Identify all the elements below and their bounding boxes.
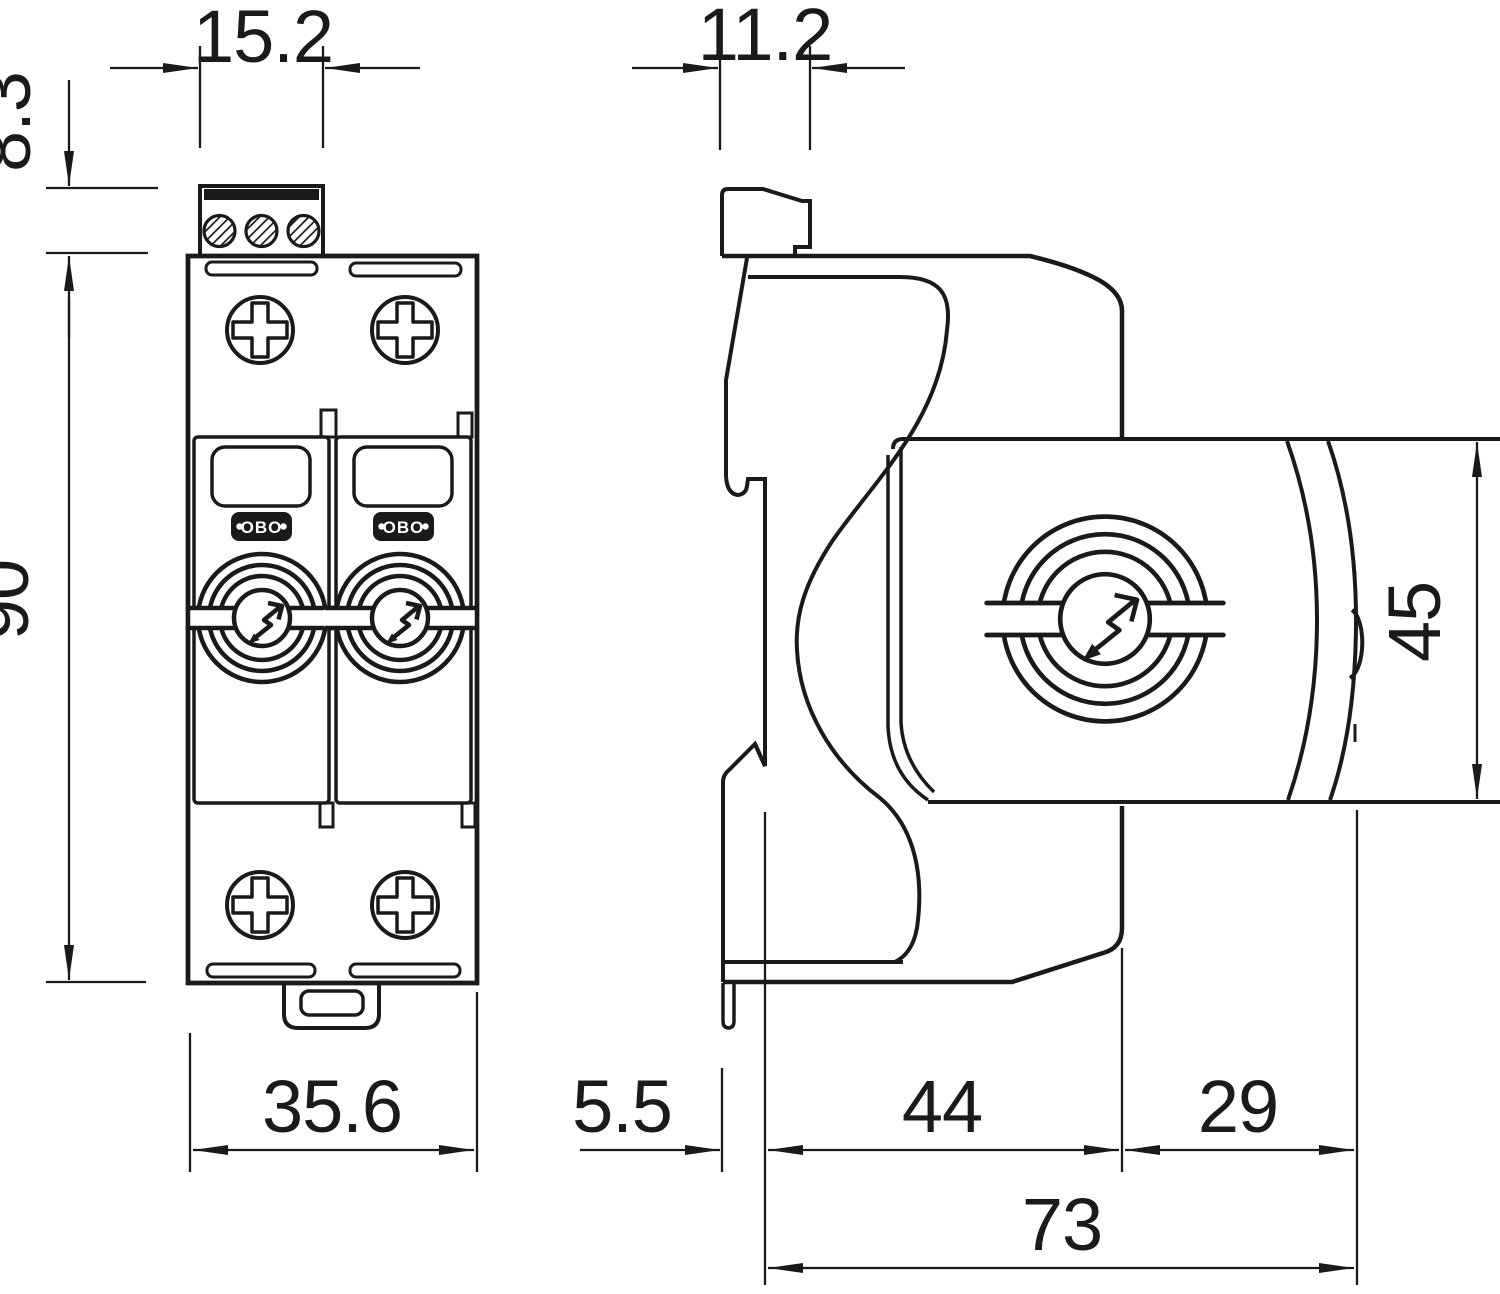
- dim-label: 8.3: [0, 72, 46, 172]
- phillips-screw-icon: [227, 297, 293, 363]
- obo-logo: OBO: [373, 512, 434, 541]
- phillips-screw-icon: [372, 872, 438, 938]
- dimension-drawing-page: OBO OBO: [0, 0, 1500, 1294]
- obo-logo-text: OBO: [241, 518, 283, 537]
- terminal-screw-icon: [204, 216, 319, 247]
- front-view: OBO OBO: [186, 186, 477, 1028]
- dim-label: 5.5: [572, 1065, 672, 1148]
- dim-label: 11.2: [698, 0, 833, 76]
- dim-label: 90: [0, 560, 44, 640]
- dim-label: 35.6: [262, 1065, 402, 1148]
- technical-drawing-canvas: OBO OBO: [0, 0, 1500, 1294]
- obo-logo-text: OBO: [383, 518, 425, 537]
- phillips-screw-icon: [227, 872, 293, 938]
- front-terminal-block: [200, 186, 323, 256]
- dim-label: 45: [1373, 582, 1456, 662]
- terminal-cover-strip: [204, 189, 319, 200]
- dim-label: 73: [1022, 1183, 1102, 1266]
- phillips-screw-icon: [372, 297, 438, 363]
- obo-logo: OBO: [231, 512, 292, 541]
- dim-label: 29: [1198, 1065, 1278, 1148]
- dim-label: 15.2: [193, 0, 333, 78]
- side-terminal-block: [722, 189, 810, 256]
- dim-label: 44: [902, 1065, 982, 1148]
